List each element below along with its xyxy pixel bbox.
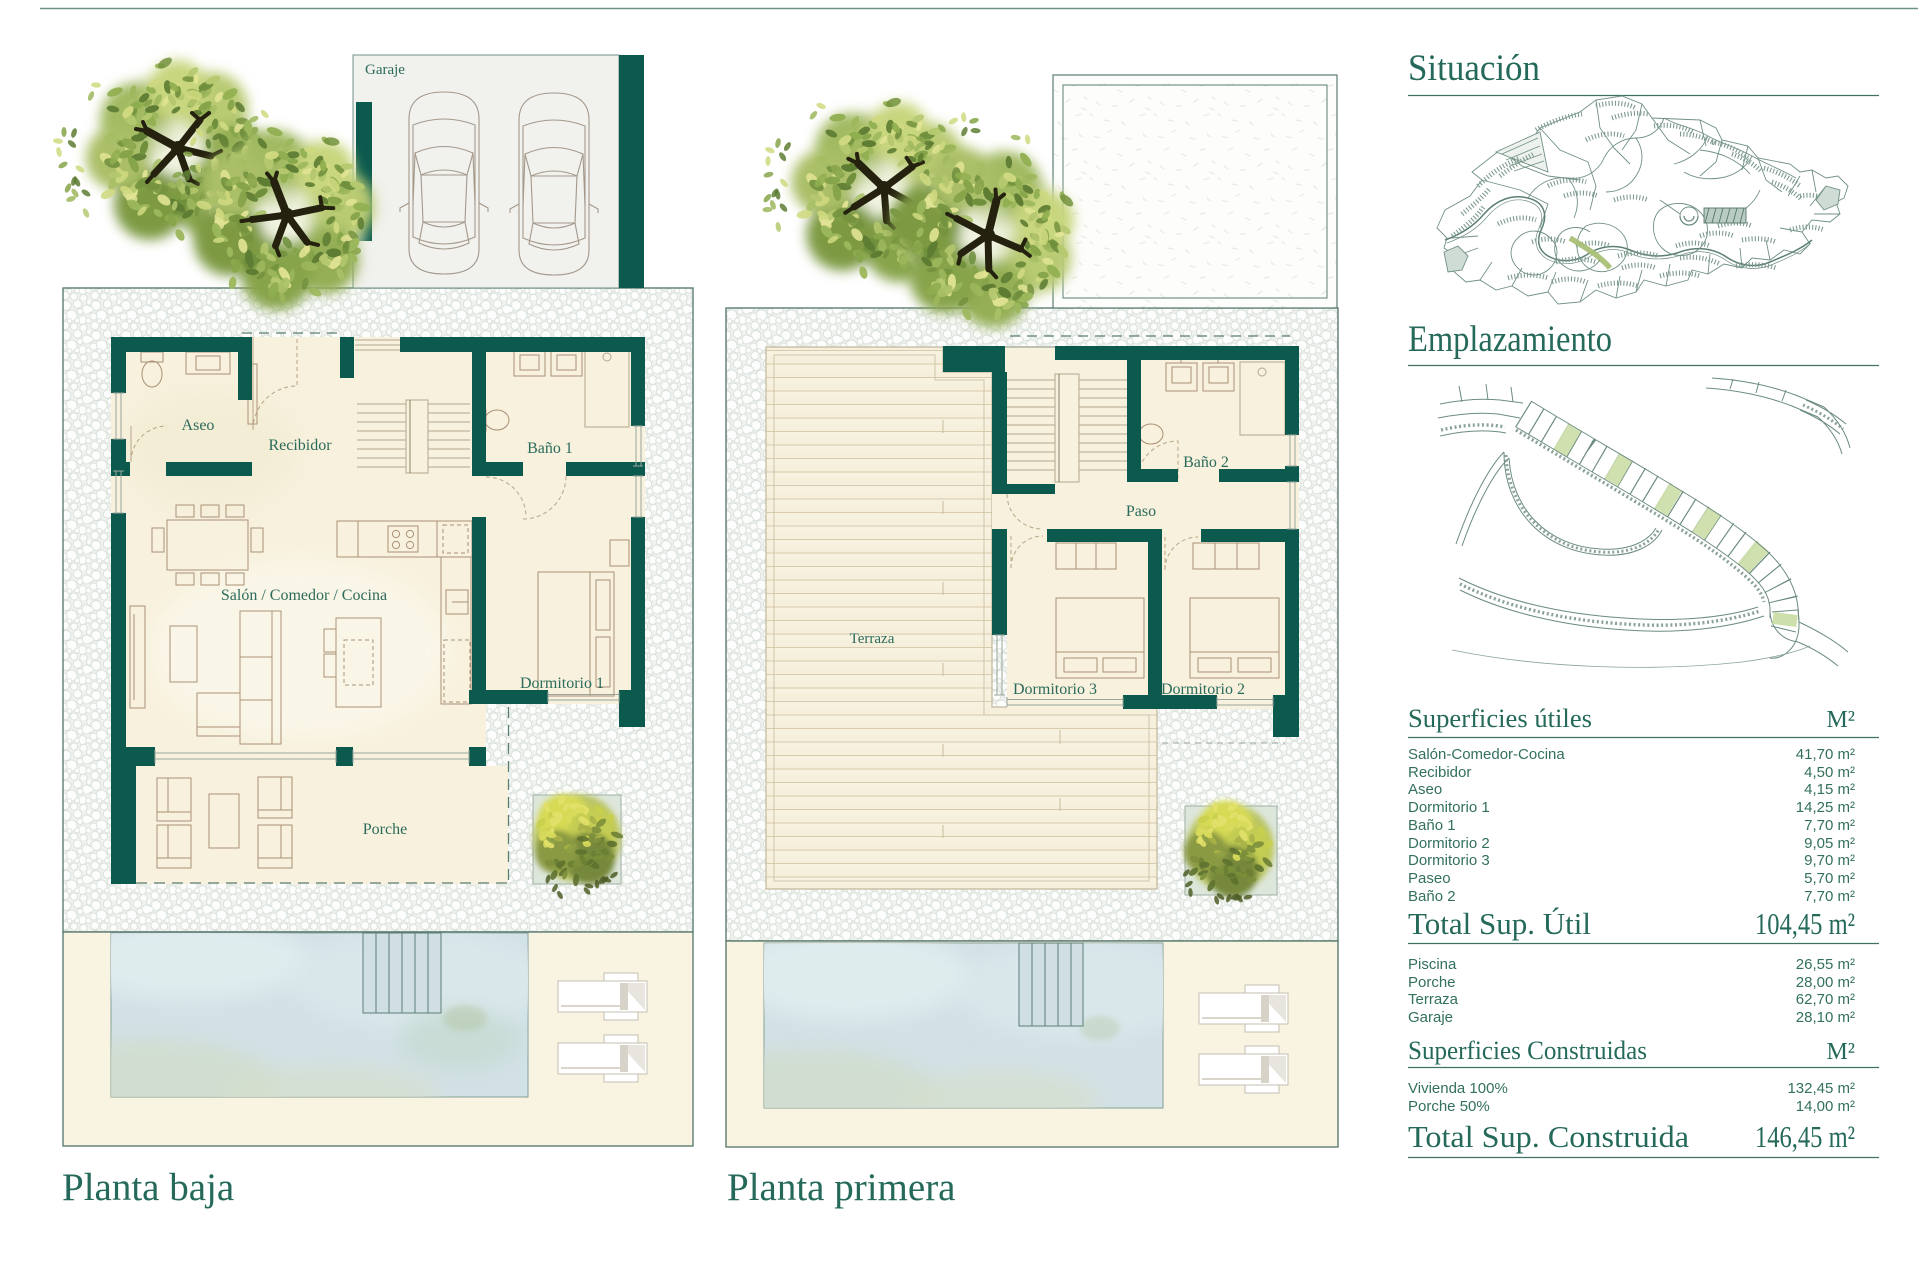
svg-text:Dormitorio 1: Dormitorio 1 — [1408, 799, 1490, 816]
svg-text:7,70 m²: 7,70 m² — [1804, 888, 1855, 905]
svg-text:7,70 m²: 7,70 m² — [1804, 817, 1855, 834]
svg-text:Porche: Porche — [363, 821, 407, 838]
svg-text:Dormitorio 1: Dormitorio 1 — [520, 675, 604, 692]
svg-text:Situación: Situación — [1408, 48, 1540, 89]
svg-text:Salón / Comedor / Cocina: Salón / Comedor / Cocina — [221, 587, 387, 604]
svg-text:9,70 m²: 9,70 m² — [1804, 852, 1855, 869]
svg-text:132,45 m²: 132,45 m² — [1787, 1080, 1855, 1097]
svg-text:Porche: Porche — [1408, 974, 1456, 991]
svg-text:9,05 m²: 9,05 m² — [1804, 835, 1855, 852]
svg-text:4,15 m²: 4,15 m² — [1804, 781, 1855, 798]
svg-text:Superficies Construidas: Superficies Construidas — [1408, 1036, 1647, 1065]
svg-text:Planta primera: Planta primera — [727, 1166, 956, 1209]
svg-text:Terraza: Terraza — [850, 631, 895, 647]
svg-text:Salón-Comedor-Cocina: Salón-Comedor-Cocina — [1408, 746, 1565, 763]
svg-text:Aseo: Aseo — [1408, 781, 1442, 798]
svg-text:Baño 1: Baño 1 — [1408, 817, 1456, 834]
svg-text:Total Sup. Construida: Total Sup. Construida — [1408, 1119, 1689, 1154]
svg-text:Dormitorio 2: Dormitorio 2 — [1161, 681, 1245, 698]
svg-text:Total Sup. Útil: Total Sup. Útil — [1408, 906, 1591, 941]
svg-text:Paseo: Paseo — [1408, 870, 1451, 887]
svg-text:Paso: Paso — [1126, 503, 1156, 520]
svg-text:Recibidor: Recibidor — [268, 437, 332, 454]
svg-text:Recibidor: Recibidor — [1408, 764, 1471, 781]
svg-text:Planta baja: Planta baja — [62, 1166, 234, 1209]
svg-text:Baño 1: Baño 1 — [527, 440, 573, 457]
svg-text:Emplazamiento: Emplazamiento — [1408, 319, 1612, 360]
svg-text:41,70 m²: 41,70 m² — [1796, 746, 1855, 763]
svg-text:Baño 2: Baño 2 — [1408, 888, 1456, 905]
svg-text:Terraza: Terraza — [1408, 991, 1459, 1008]
svg-text:28,00 m²: 28,00 m² — [1796, 974, 1855, 991]
svg-text:14,00 m²: 14,00 m² — [1796, 1098, 1855, 1115]
svg-text:Piscina: Piscina — [1408, 956, 1457, 973]
svg-text:4,50 m²: 4,50 m² — [1804, 764, 1855, 781]
svg-text:Porche 50%: Porche 50% — [1408, 1098, 1490, 1115]
svg-text:Garaje: Garaje — [1408, 1009, 1453, 1026]
svg-text:26,55 m²: 26,55 m² — [1796, 956, 1855, 973]
svg-text:Superficies útiles: Superficies útiles — [1408, 704, 1592, 733]
svg-text:Aseo: Aseo — [182, 417, 215, 434]
svg-text:Vivienda 100%: Vivienda 100% — [1408, 1080, 1508, 1097]
svg-text:14,25 m²: 14,25 m² — [1796, 799, 1855, 816]
svg-text:104,45 m²: 104,45 m² — [1755, 906, 1855, 941]
svg-text:62,70 m²: 62,70 m² — [1796, 991, 1855, 1008]
svg-text:Baño 2: Baño 2 — [1183, 454, 1229, 471]
svg-text:Garaje: Garaje — [365, 62, 405, 78]
svg-text:146,45 m²: 146,45 m² — [1755, 1119, 1855, 1154]
svg-text:5,70 m²: 5,70 m² — [1804, 870, 1855, 887]
svg-text:M²: M² — [1826, 1039, 1855, 1065]
svg-text:Dormitorio 2: Dormitorio 2 — [1408, 835, 1490, 852]
svg-text:28,10 m²: 28,10 m² — [1796, 1009, 1855, 1026]
svg-text:Dormitorio 3: Dormitorio 3 — [1408, 852, 1490, 869]
svg-text:Dormitorio 3: Dormitorio 3 — [1013, 681, 1097, 698]
svg-text:M²: M² — [1826, 707, 1855, 733]
